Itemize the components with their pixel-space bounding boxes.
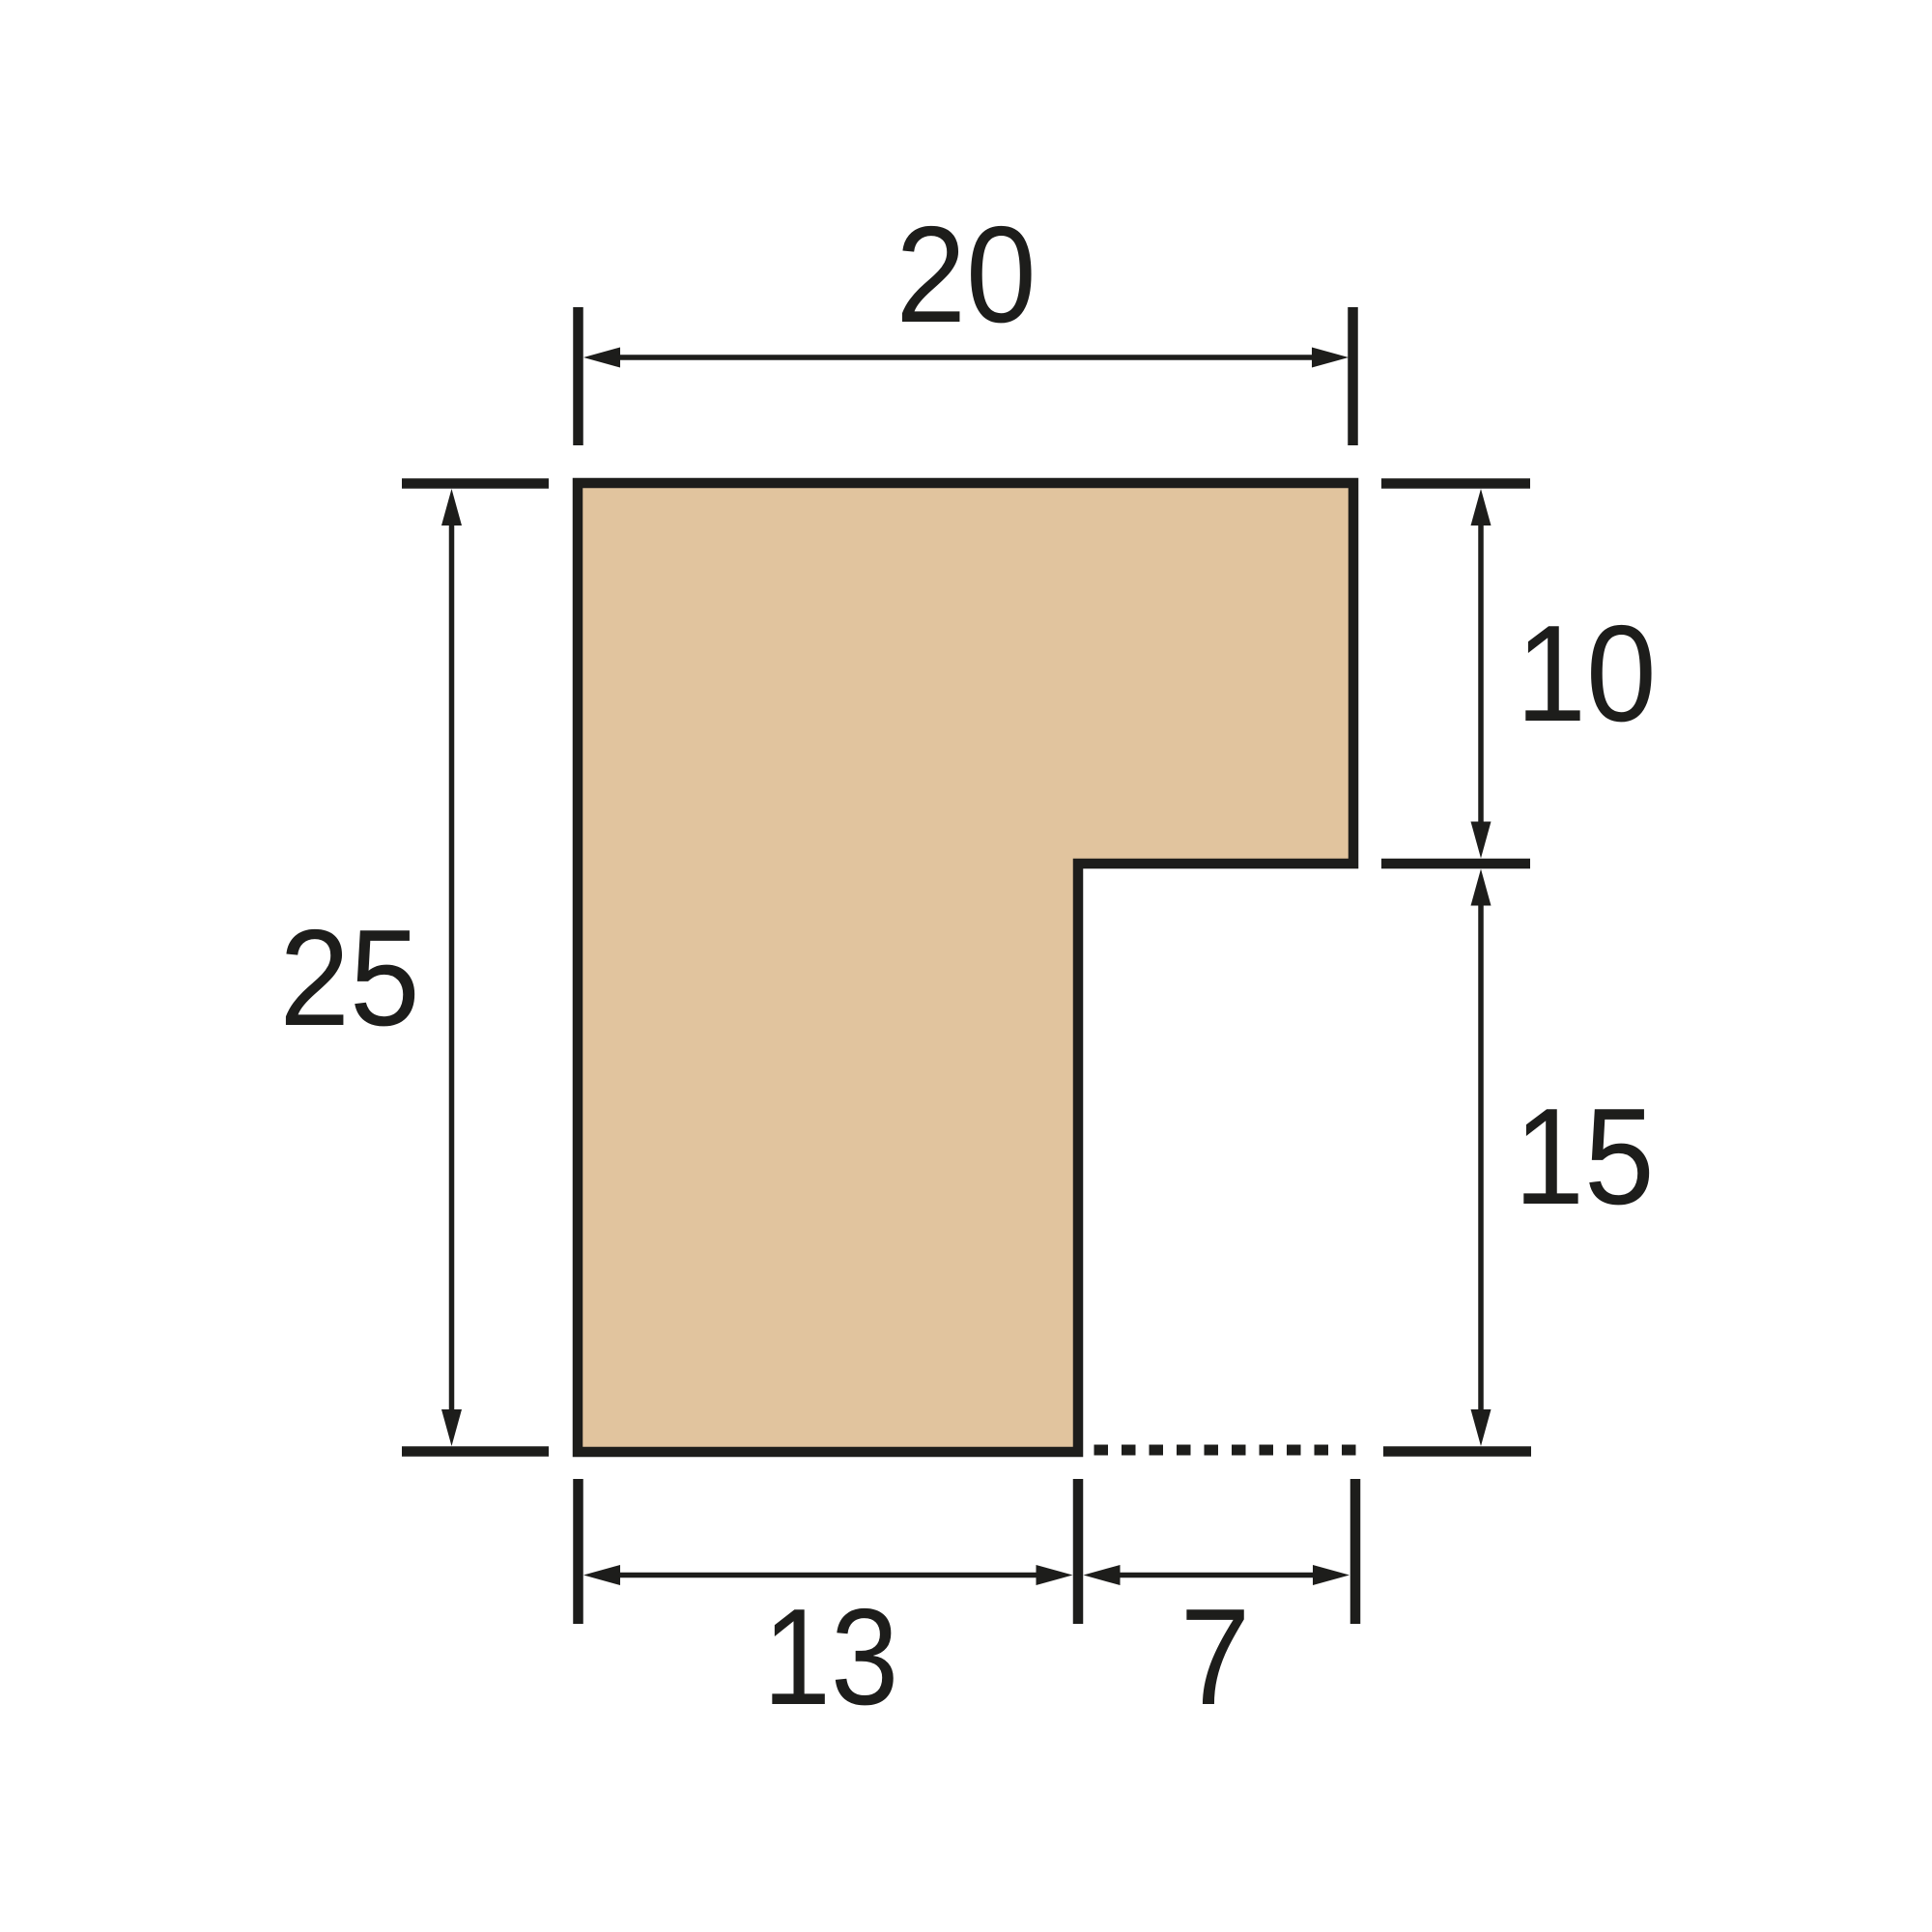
svg-text:25: 25 (279, 900, 419, 1054)
svg-text:20: 20 (895, 197, 1036, 351)
svg-text:7: 7 (1180, 1579, 1251, 1733)
svg-text:13: 13 (763, 1580, 899, 1733)
svg-text:10: 10 (1516, 596, 1656, 750)
svg-text:15: 15 (1514, 1079, 1654, 1233)
